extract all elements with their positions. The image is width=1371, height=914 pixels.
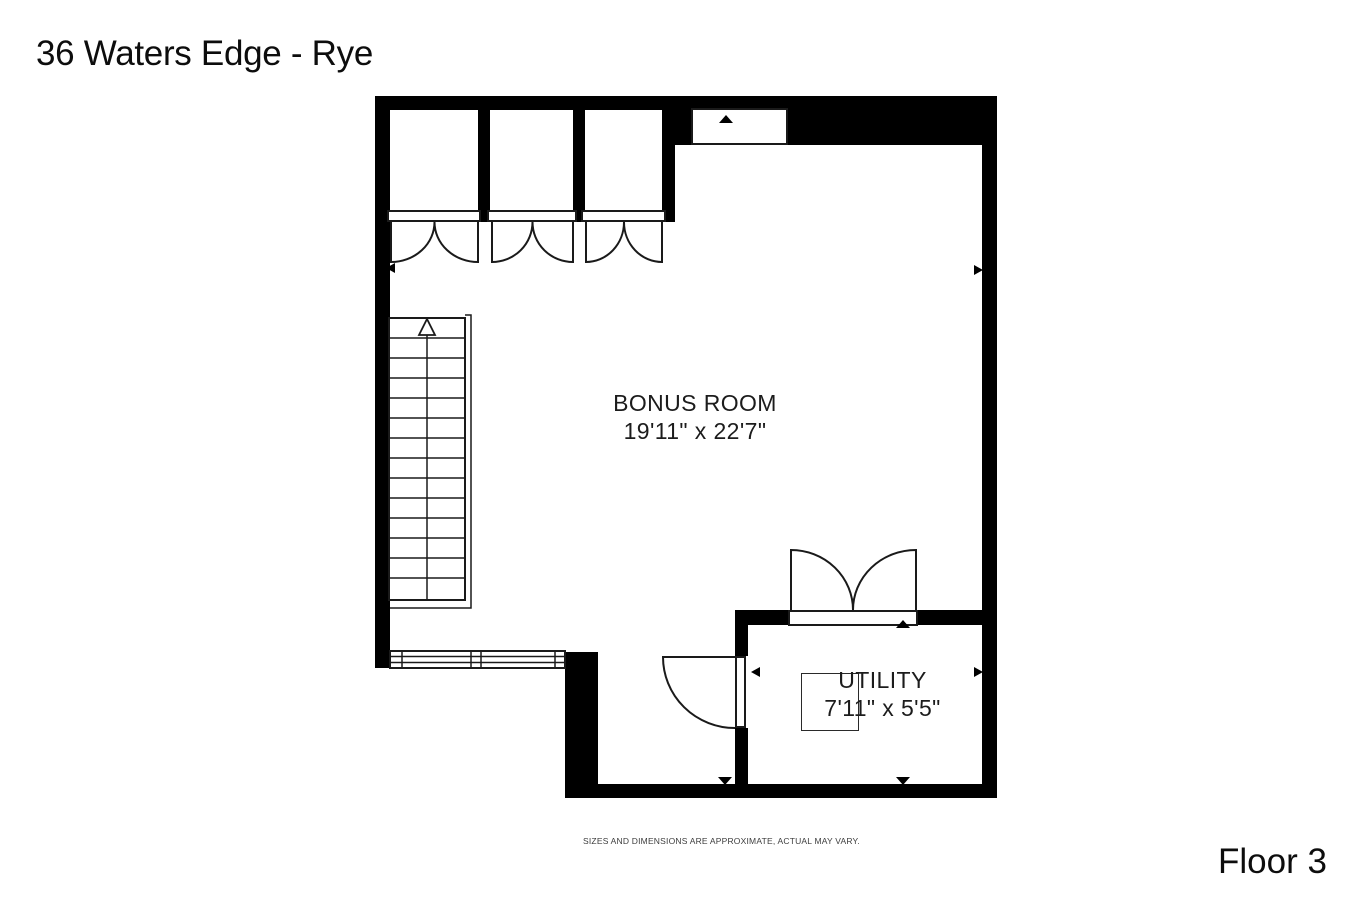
- closet-1-threshold: [387, 210, 481, 222]
- closet-2-double-door: [492, 222, 573, 262]
- room-label-utility: UTILITY 7'11" x 5'5": [770, 666, 995, 722]
- page-title: 36 Waters Edge - Rye: [36, 34, 373, 74]
- marker-utility-left-icon: [748, 667, 760, 677]
- wall-niche: [691, 108, 788, 145]
- stairs-up-arrow-icon: [419, 319, 435, 335]
- wall-closet-divider-2: [573, 110, 585, 222]
- stairs-railing: [390, 315, 471, 608]
- utility-double-door: [791, 550, 916, 610]
- marker-bonus-left-icon: [383, 263, 395, 273]
- wall-utility-left-upper: [735, 610, 748, 656]
- room-label-bonus: BONUS ROOM 19'11" x 22'7": [570, 389, 820, 445]
- marker-niche-icon: [719, 112, 733, 123]
- closet-1-double-door: [391, 222, 478, 262]
- floor-plan-page: 36 Waters Edge - Rye BONUS ROOM 19'11" x…: [0, 0, 1371, 914]
- room-name-bonus: BONUS ROOM: [570, 389, 820, 417]
- marker-bonus-right-icon: [974, 265, 986, 275]
- disclaimer-text: SIZES AND DIMENSIONS ARE APPROXIMATE, AC…: [583, 836, 860, 846]
- closet-3-double-door: [586, 222, 662, 262]
- marker-utility-top-icon: [896, 617, 910, 628]
- room-dimensions-utility: 7'11" x 5'5": [770, 694, 995, 722]
- floor-label: Floor 3: [1218, 842, 1327, 882]
- marker-bonus-bottom-icon: [718, 777, 732, 788]
- window: [390, 651, 565, 668]
- marker-utility-bottom-icon: [896, 777, 910, 788]
- closet-3-threshold: [581, 210, 666, 222]
- wall-utility-left-lower: [735, 728, 748, 784]
- wall-step-left: [565, 652, 598, 798]
- closet-2-threshold: [487, 210, 577, 222]
- wall-closet-divider-1: [478, 110, 490, 222]
- wall-left: [375, 96, 390, 668]
- utility-side-door-swing: [663, 657, 735, 728]
- wall-top: [375, 96, 997, 110]
- utility-side-door-leaf: [735, 656, 746, 728]
- wall-bottom: [565, 784, 997, 798]
- wall-closet-right: [662, 110, 675, 222]
- room-dimensions-bonus: 19'11" x 22'7": [570, 417, 820, 445]
- staircase: [389, 315, 471, 608]
- room-name-utility: UTILITY: [770, 666, 995, 694]
